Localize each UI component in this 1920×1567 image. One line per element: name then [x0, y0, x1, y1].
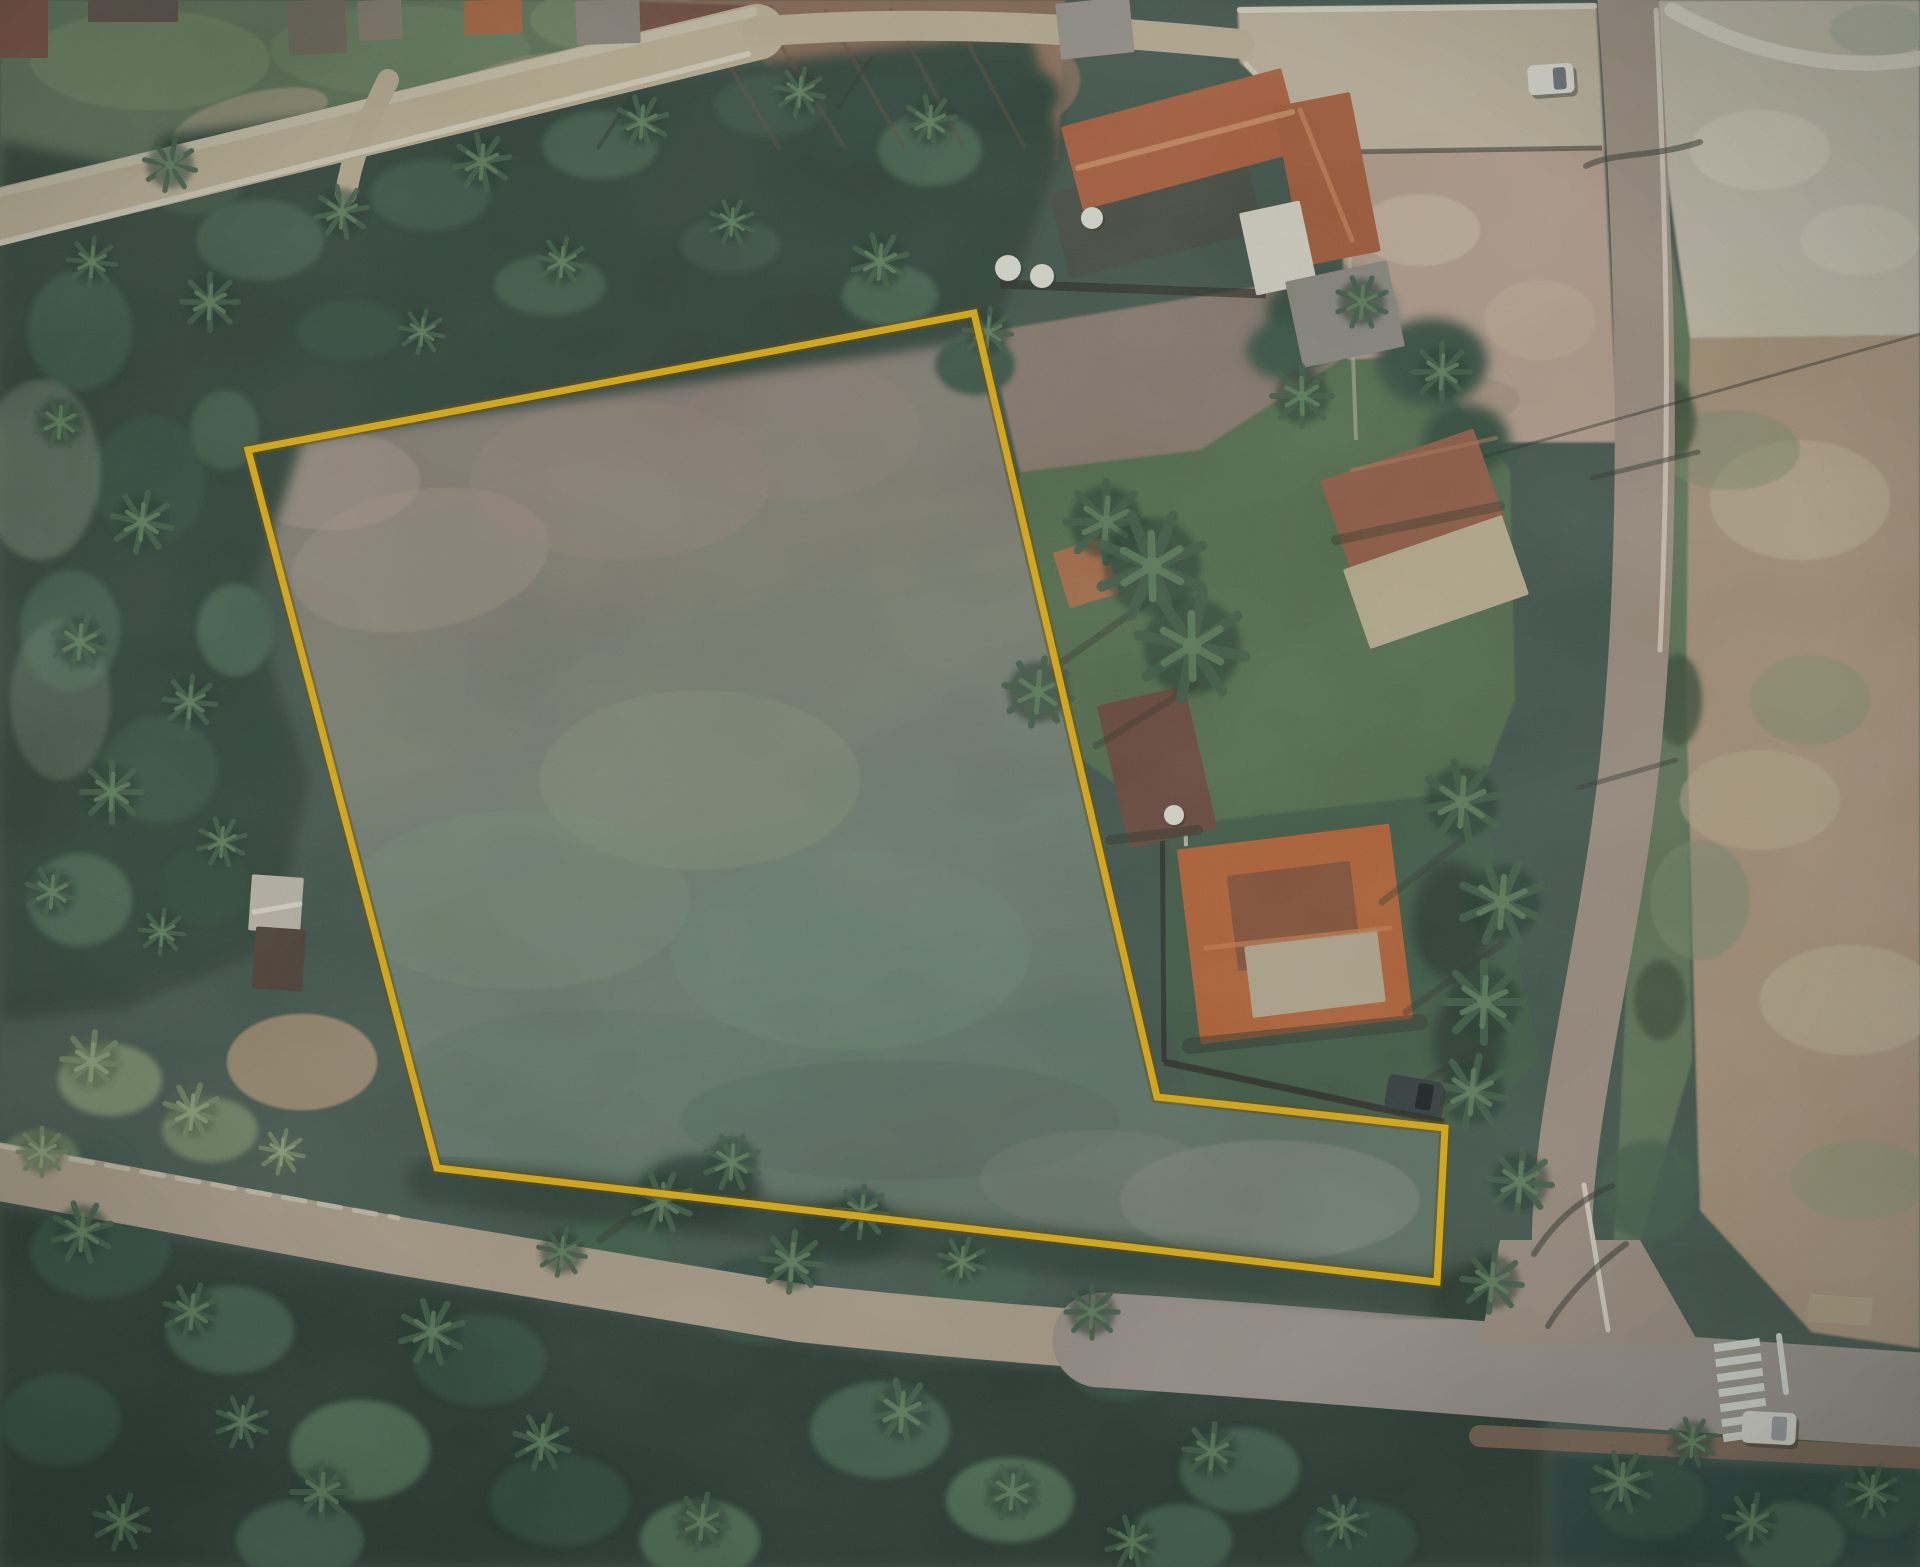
satellite-map-view: Satellite aerial photograph of a rural l…	[0, 0, 1920, 1567]
satellite-imagery	[0, 0, 1920, 1567]
photo-grain	[0, 0, 1920, 1567]
